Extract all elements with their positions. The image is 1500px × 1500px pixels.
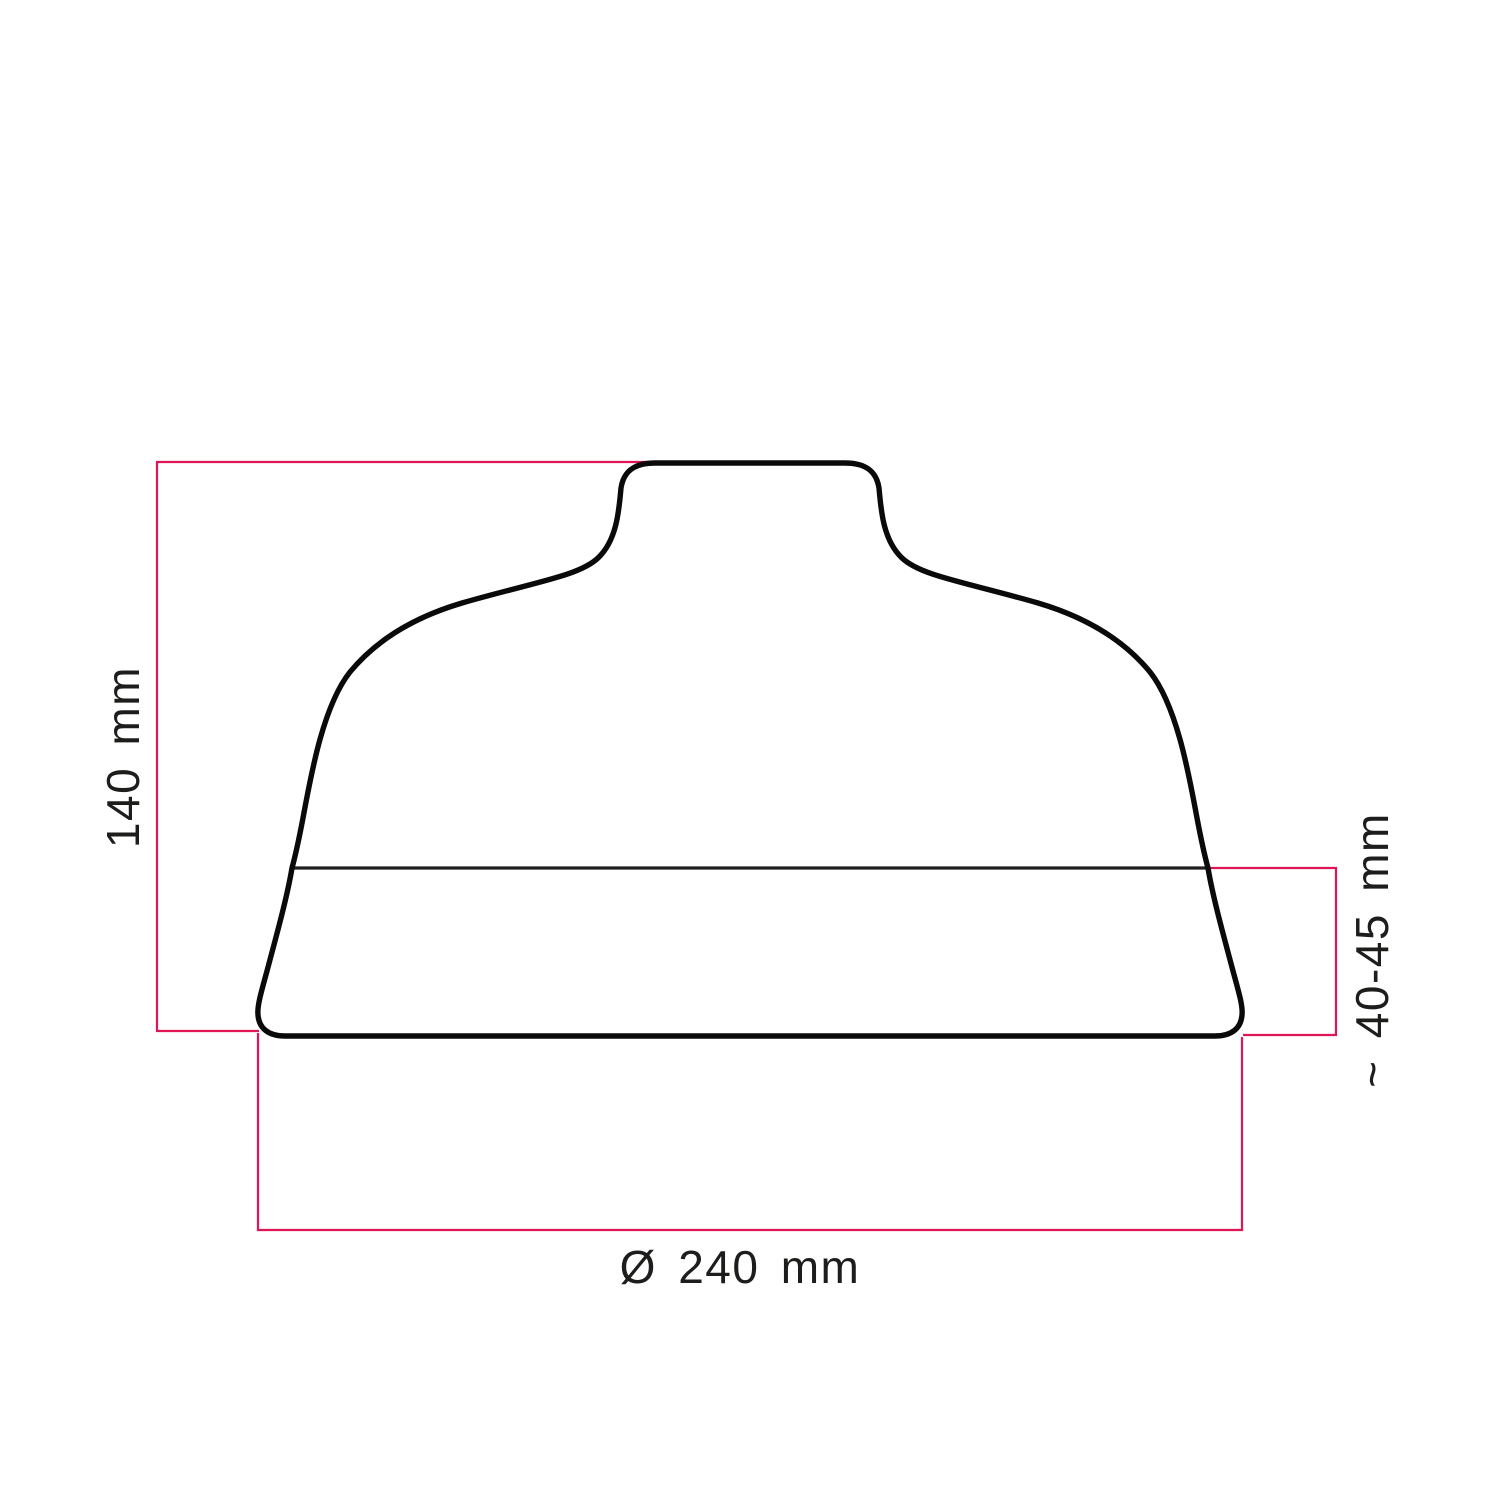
diameter-dimension-line <box>258 1033 1242 1230</box>
socket-depth-dimension-line <box>1205 868 1336 1035</box>
height-dimension-line <box>157 462 648 1031</box>
diameter-dimension-label: Ø 240 mm <box>620 1244 861 1290</box>
socket-depth-dimension-label: ~ 40-45 mm <box>1349 812 1395 1088</box>
lampshade-outline <box>258 463 1242 1036</box>
dimension-diagram: 140 mm ~ 40-45 mm Ø 240 mm <box>0 0 1500 1500</box>
height-dimension-label: 140 mm <box>100 666 146 848</box>
